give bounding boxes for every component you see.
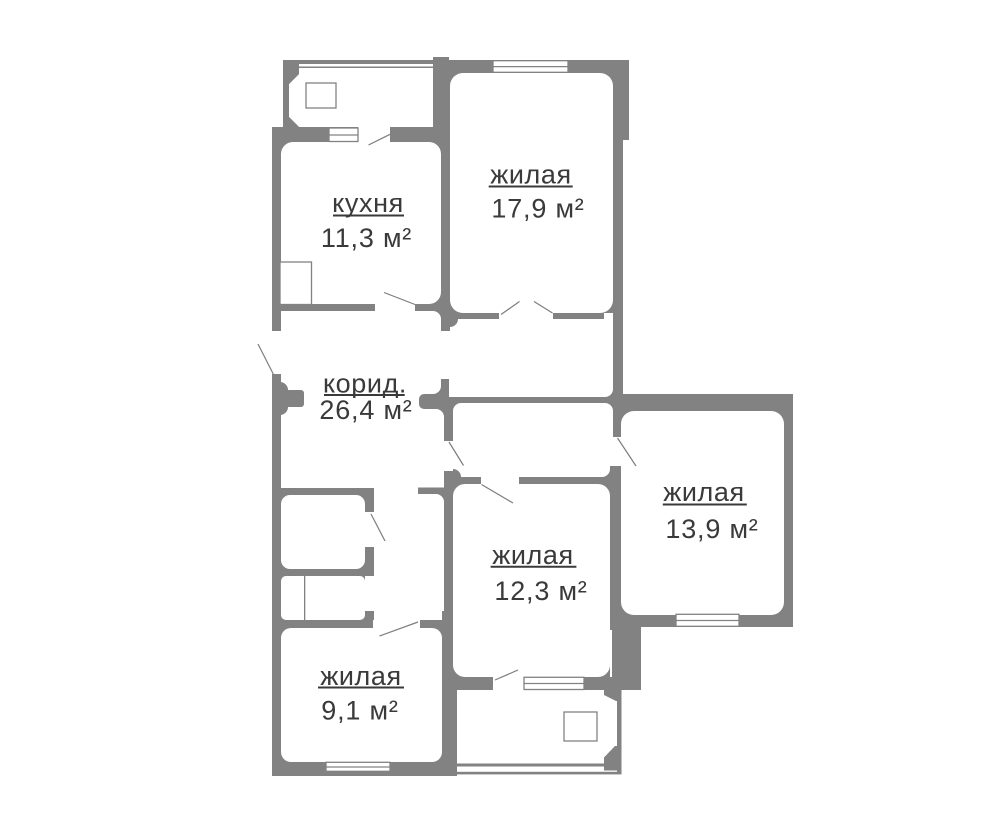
svg-text:жилая: жилая: [492, 540, 574, 570]
svg-text:кухня: кухня: [332, 188, 404, 218]
svg-text:жилая: жилая: [490, 160, 572, 190]
svg-text:9,1 м²: 9,1 м²: [321, 696, 398, 726]
svg-text:11,3 м²: 11,3 м²: [321, 223, 412, 253]
svg-text:жилая: жилая: [663, 477, 745, 507]
svg-text:26,4 м²: 26,4 м²: [319, 395, 412, 425]
svg-text:13,9 м²: 13,9 м²: [665, 514, 758, 544]
svg-text:17,9 м²: 17,9 м²: [491, 194, 584, 224]
svg-text:12,3 м²: 12,3 м²: [494, 576, 587, 606]
